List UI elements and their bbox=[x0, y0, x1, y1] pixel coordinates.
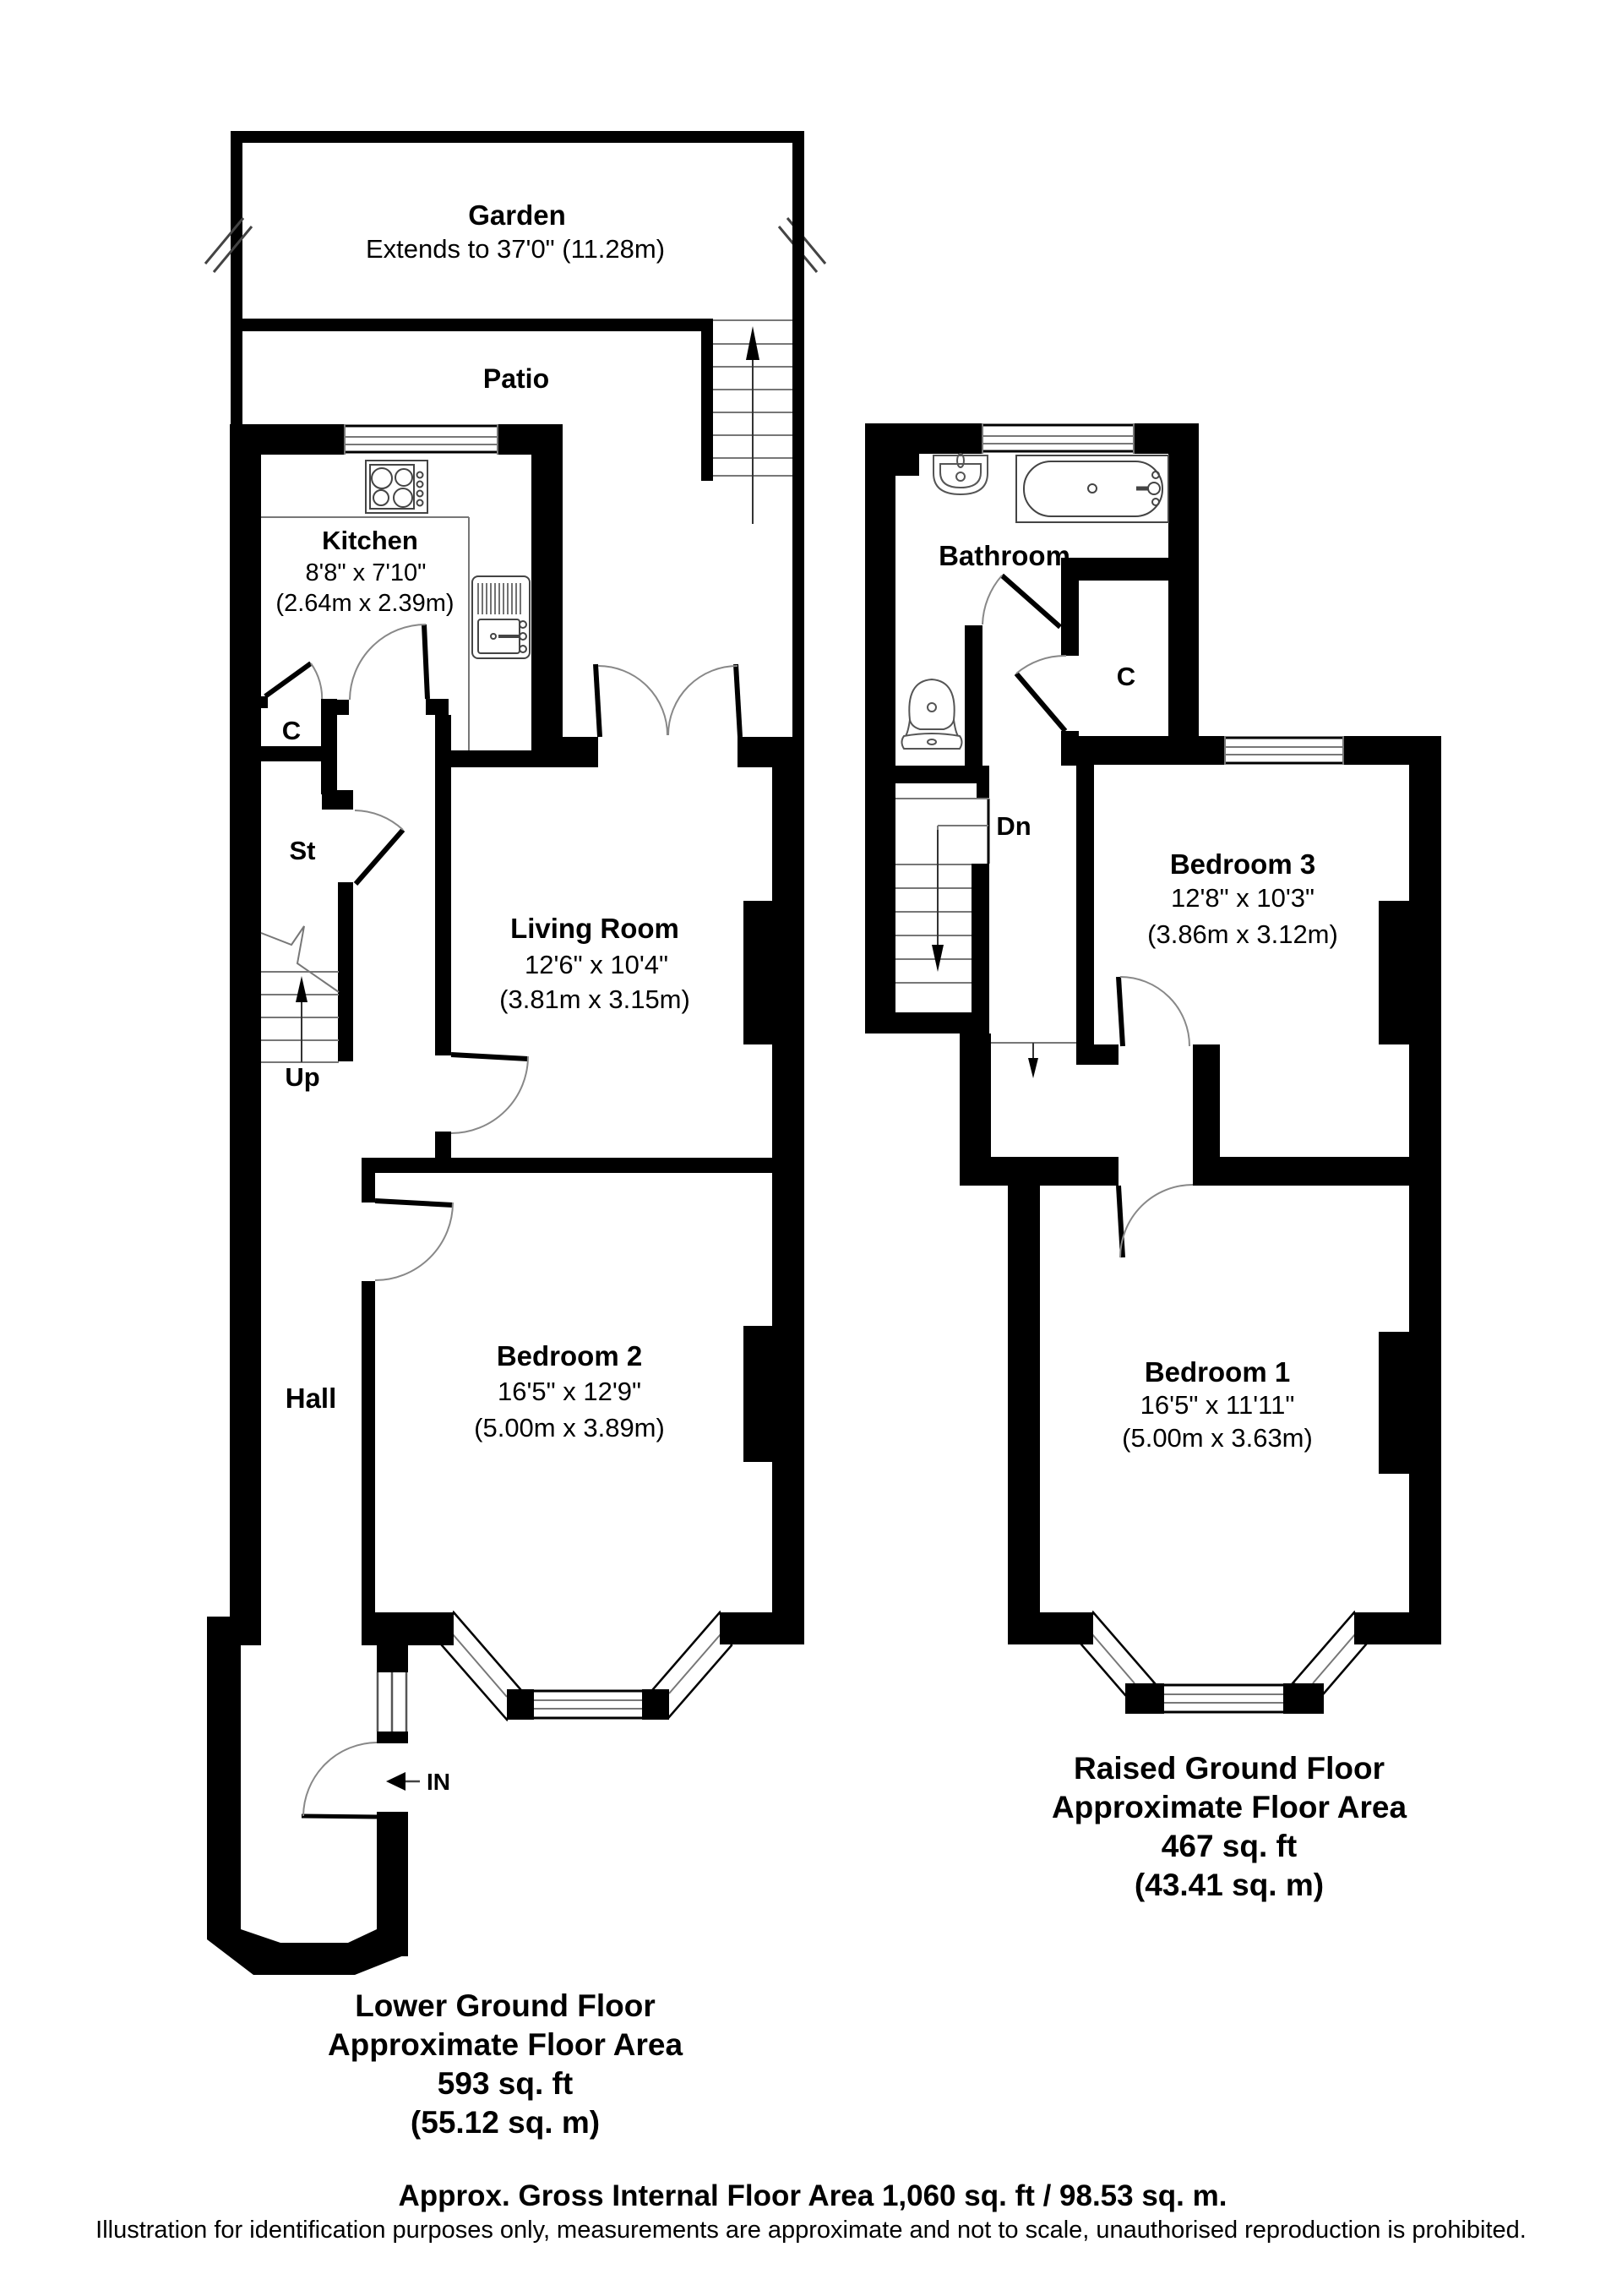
svg-text:467 sq. ft: 467 sq. ft bbox=[1162, 1829, 1297, 1863]
svg-text:Bathroom: Bathroom bbox=[939, 540, 1070, 571]
svg-text:Living Room: Living Room bbox=[510, 913, 679, 944]
svg-text:593 sq. ft: 593 sq. ft bbox=[438, 2066, 573, 2101]
svg-text:Approximate Floor Area: Approximate Floor Area bbox=[328, 2027, 683, 2062]
svg-text:Extends to 37'0" (11.28m): Extends to 37'0" (11.28m) bbox=[366, 234, 665, 264]
svg-text:Bedroom 1: Bedroom 1 bbox=[1145, 1356, 1290, 1388]
svg-text:Bedroom 3: Bedroom 3 bbox=[1170, 848, 1315, 880]
svg-text:(5.00m x 3.89m): (5.00m x 3.89m) bbox=[474, 1413, 665, 1442]
svg-text:Bedroom 2: Bedroom 2 bbox=[497, 1340, 642, 1372]
svg-text:8'8" x 7'10": 8'8" x 7'10" bbox=[306, 559, 427, 586]
svg-text:(5.00m x 3.63m): (5.00m x 3.63m) bbox=[1122, 1423, 1313, 1453]
svg-text:Kitchen: Kitchen bbox=[322, 526, 418, 555]
svg-text:12'8" x 10'3": 12'8" x 10'3" bbox=[1171, 883, 1314, 913]
svg-text:(2.64m x 2.39m): (2.64m x 2.39m) bbox=[275, 590, 454, 617]
svg-text:Lower Ground Floor: Lower Ground Floor bbox=[355, 1988, 656, 2023]
svg-text:(3.81m x 3.15m): (3.81m x 3.15m) bbox=[499, 984, 690, 1014]
svg-text:12'6" x 10'4": 12'6" x 10'4" bbox=[525, 950, 668, 979]
svg-text:Garden: Garden bbox=[468, 199, 566, 231]
svg-text:Patio: Patio bbox=[483, 363, 549, 394]
svg-text:Up: Up bbox=[285, 1062, 319, 1092]
svg-text:C: C bbox=[282, 716, 301, 745]
svg-text:Illustration for identificatio: Illustration for identification purposes… bbox=[95, 2217, 1527, 2244]
svg-text:C: C bbox=[1117, 662, 1135, 691]
svg-text:St: St bbox=[290, 836, 316, 865]
svg-text:Approximate Floor Area: Approximate Floor Area bbox=[1052, 1790, 1407, 1824]
svg-text:Dn: Dn bbox=[996, 811, 1031, 841]
svg-text:(3.86m x 3.12m): (3.86m x 3.12m) bbox=[1147, 919, 1338, 949]
svg-text:Hall: Hall bbox=[286, 1383, 337, 1414]
svg-text:IN: IN bbox=[427, 1769, 450, 1795]
svg-text:(55.12 sq. m): (55.12 sq. m) bbox=[411, 2105, 600, 2140]
svg-text:16'5" x 12'9": 16'5" x 12'9" bbox=[498, 1377, 641, 1406]
svg-text:Approx. Gross Internal Floor A: Approx. Gross Internal Floor Area 1,060 … bbox=[399, 2179, 1227, 2212]
svg-text:Raised Ground Floor: Raised Ground Floor bbox=[1074, 1751, 1385, 1786]
svg-text:(43.41 sq. m): (43.41 sq. m) bbox=[1135, 1868, 1324, 1902]
svg-text:16'5" x 11'11": 16'5" x 11'11" bbox=[1140, 1390, 1295, 1420]
